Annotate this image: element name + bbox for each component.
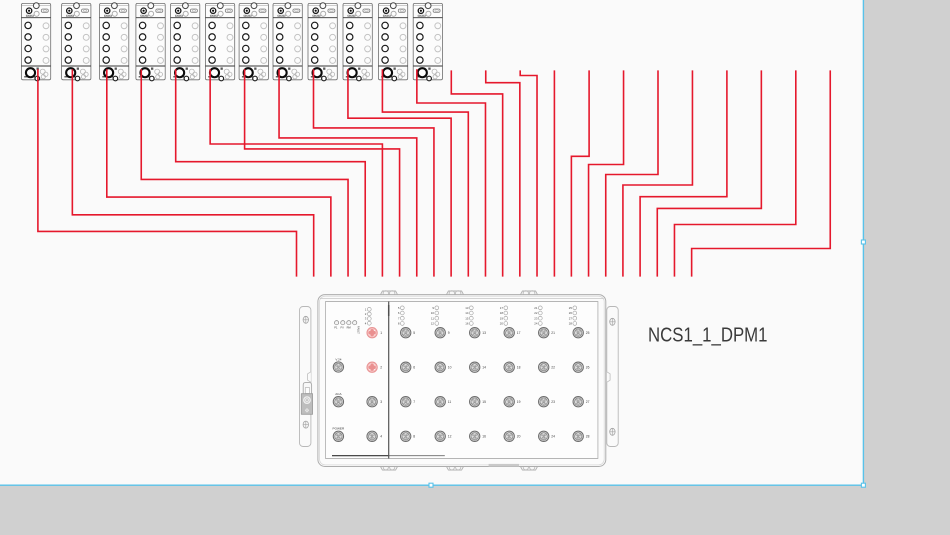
svg-text:21: 21 [551, 331, 555, 335]
svg-text:23: 23 [551, 400, 555, 404]
svg-text:22: 22 [551, 365, 555, 369]
svg-text:15: 15 [465, 316, 469, 320]
svg-text:NCS1_1_DPM1: NCS1_1_DPM1 [648, 323, 768, 347]
svg-text:13: 13 [482, 331, 486, 335]
svg-text:24: 24 [551, 435, 555, 439]
svg-text:28: 28 [569, 322, 573, 326]
svg-text:POWER: POWER [333, 427, 345, 431]
svg-text:3: 3 [380, 400, 382, 404]
svg-text:1: 1 [380, 331, 382, 335]
svg-text:20: 20 [517, 435, 521, 439]
svg-text:25: 25 [586, 331, 590, 335]
svg-text:27: 27 [586, 400, 590, 404]
svg-text:12: 12 [431, 322, 435, 326]
svg-text:10: 10 [448, 365, 452, 369]
svg-text:15: 15 [482, 400, 486, 404]
svg-text:17: 17 [500, 306, 504, 310]
svg-text:10: 10 [431, 311, 435, 315]
svg-text:19: 19 [517, 400, 521, 404]
svg-text:V.24: V.24 [335, 357, 341, 361]
svg-text:14: 14 [465, 311, 469, 315]
svg-text:27: 27 [569, 316, 573, 320]
svg-text:26: 26 [569, 311, 573, 315]
svg-text:22: 22 [534, 311, 538, 315]
svg-text:17: 17 [517, 331, 521, 335]
svg-text:16: 16 [465, 322, 469, 326]
svg-text:RM: RM [347, 326, 351, 330]
svg-text:19: 19 [500, 316, 504, 320]
svg-text:20: 20 [500, 322, 504, 326]
svg-text:26: 26 [586, 365, 590, 369]
svg-text:5: 5 [413, 331, 415, 335]
svg-text:FAULT: FAULT [357, 326, 361, 334]
svg-text:28: 28 [586, 435, 590, 439]
svg-text:23: 23 [534, 316, 538, 320]
svg-text:2: 2 [380, 365, 382, 369]
svg-text:11: 11 [431, 316, 434, 320]
svg-text:13: 13 [465, 306, 469, 310]
svg-text:ACA: ACA [335, 392, 342, 396]
svg-text:P1: P1 [334, 326, 338, 330]
svg-text:4: 4 [380, 435, 382, 439]
svg-text:16: 16 [482, 435, 486, 439]
svg-text:8: 8 [413, 435, 415, 439]
svg-text:18: 18 [500, 311, 504, 315]
svg-text:6: 6 [413, 365, 415, 369]
svg-text:24: 24 [534, 322, 538, 326]
svg-text:11: 11 [448, 400, 452, 404]
svg-text:14: 14 [482, 365, 486, 369]
svg-text:21: 21 [534, 306, 538, 310]
svg-text:FV: FV [341, 326, 345, 330]
svg-text:7: 7 [413, 400, 415, 404]
svg-text:25: 25 [569, 306, 573, 310]
svg-text:9: 9 [448, 331, 450, 335]
svg-text:18: 18 [517, 365, 521, 369]
svg-text:12: 12 [448, 435, 452, 439]
